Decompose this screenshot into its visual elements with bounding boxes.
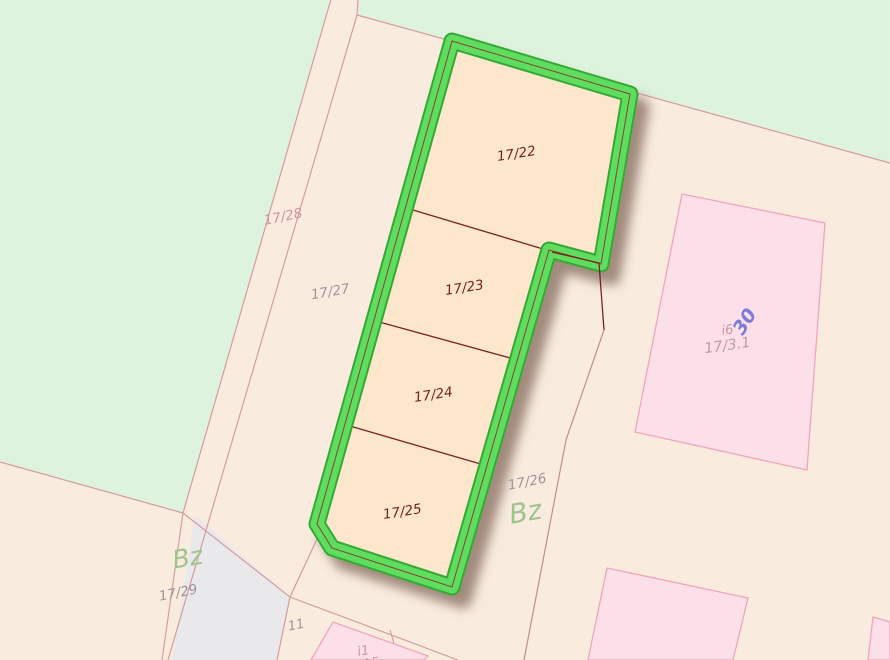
label-landuse-label-bz-left: Bz	[170, 541, 206, 575]
map-canvas[interactable]: 17/2217/2317/2417/2517/2617/2717/2817/29…	[0, 0, 890, 660]
cadastral-map-svg[interactable]: 17/2217/2317/2417/2517/2617/2717/2817/29…	[0, 0, 890, 660]
label-landuse-label-bz-right: Bz	[507, 494, 545, 530]
